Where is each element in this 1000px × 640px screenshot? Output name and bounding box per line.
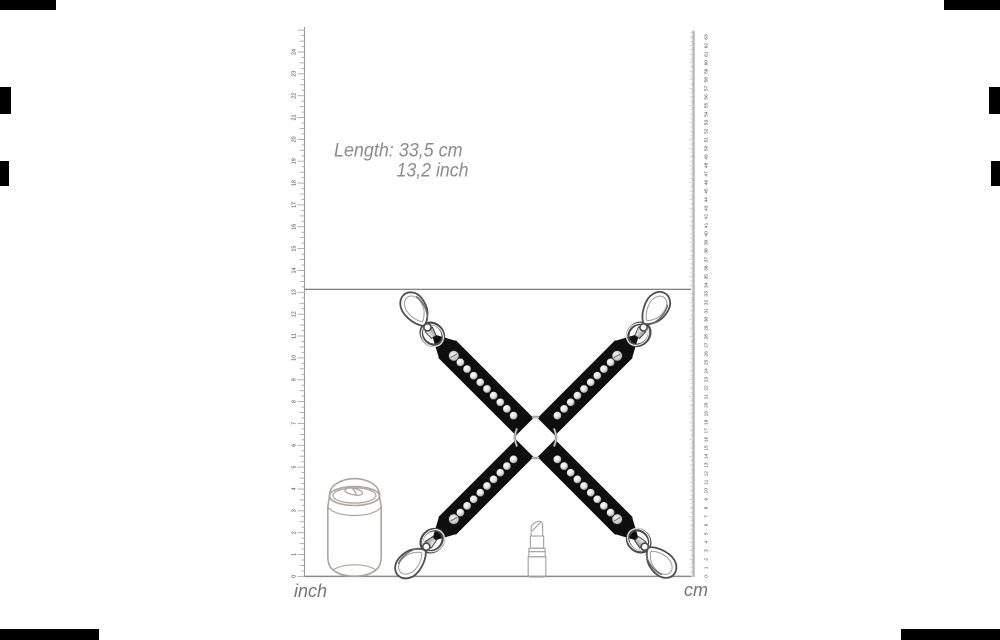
svg-text:inch: inch xyxy=(294,581,327,601)
svg-text:9: 9 xyxy=(704,498,710,501)
svg-text:39: 39 xyxy=(704,240,710,246)
svg-text:12: 12 xyxy=(704,471,710,477)
svg-text:4: 4 xyxy=(292,488,298,491)
svg-text:23: 23 xyxy=(704,377,710,383)
svg-text:52: 52 xyxy=(704,128,710,134)
svg-text:61: 61 xyxy=(704,51,710,57)
svg-text:10: 10 xyxy=(292,355,298,361)
svg-text:50: 50 xyxy=(704,145,710,151)
svg-text:19: 19 xyxy=(292,158,298,164)
svg-text:29: 29 xyxy=(704,325,710,331)
svg-text:14: 14 xyxy=(704,454,710,460)
svg-text:63: 63 xyxy=(704,34,710,40)
svg-text:62: 62 xyxy=(704,43,710,49)
svg-text:8: 8 xyxy=(292,400,298,403)
svg-text:8: 8 xyxy=(704,506,710,509)
svg-text:58: 58 xyxy=(704,77,710,83)
svg-text:14: 14 xyxy=(292,268,298,274)
svg-text:Length: 33,5 cm: Length: 33,5 cm xyxy=(334,140,463,162)
svg-text:1: 1 xyxy=(704,566,710,569)
svg-text:18: 18 xyxy=(292,180,298,186)
svg-text:24: 24 xyxy=(704,368,710,374)
svg-text:22: 22 xyxy=(292,93,298,99)
svg-text:44: 44 xyxy=(704,197,710,203)
svg-text:11: 11 xyxy=(704,479,710,484)
svg-text:22: 22 xyxy=(704,385,710,391)
svg-text:46: 46 xyxy=(704,180,710,186)
svg-text:6: 6 xyxy=(704,523,710,526)
svg-text:27: 27 xyxy=(704,342,710,348)
svg-text:15: 15 xyxy=(292,246,298,252)
svg-text:31: 31 xyxy=(704,308,710,314)
svg-text:21: 21 xyxy=(292,115,298,121)
svg-text:1: 1 xyxy=(292,553,298,556)
svg-text:13: 13 xyxy=(704,462,710,468)
svg-text:13: 13 xyxy=(292,289,298,295)
svg-text:17: 17 xyxy=(292,202,298,208)
svg-text:51: 51 xyxy=(704,137,710,143)
svg-text:34: 34 xyxy=(704,282,710,288)
svg-text:3: 3 xyxy=(292,509,298,512)
svg-text:21: 21 xyxy=(704,394,710,400)
svg-text:18: 18 xyxy=(704,419,710,425)
svg-text:41: 41 xyxy=(704,222,710,228)
svg-text:37: 37 xyxy=(704,257,710,263)
svg-text:2: 2 xyxy=(704,558,710,561)
svg-text:47: 47 xyxy=(704,171,710,177)
svg-text:26: 26 xyxy=(704,351,710,357)
svg-text:33: 33 xyxy=(704,291,710,297)
svg-text:5: 5 xyxy=(292,466,298,469)
svg-text:16: 16 xyxy=(704,436,710,442)
svg-text:28: 28 xyxy=(704,334,710,340)
svg-text:12: 12 xyxy=(292,311,298,317)
svg-text:7: 7 xyxy=(292,422,298,425)
svg-text:20: 20 xyxy=(292,136,298,142)
svg-text:53: 53 xyxy=(704,120,710,126)
svg-text:19: 19 xyxy=(704,411,710,417)
svg-text:4: 4 xyxy=(704,541,710,544)
svg-text:17: 17 xyxy=(704,428,710,434)
svg-text:20: 20 xyxy=(704,402,710,408)
svg-text:9: 9 xyxy=(292,378,298,381)
svg-text:15: 15 xyxy=(704,445,710,451)
svg-text:30: 30 xyxy=(704,317,710,323)
svg-text:0: 0 xyxy=(704,575,710,578)
svg-text:10: 10 xyxy=(704,488,710,494)
svg-text:40: 40 xyxy=(704,231,710,237)
svg-text:54: 54 xyxy=(704,111,710,117)
svg-text:2: 2 xyxy=(292,531,298,534)
svg-text:49: 49 xyxy=(704,154,710,160)
svg-text:45: 45 xyxy=(704,188,710,194)
svg-text:55: 55 xyxy=(704,103,710,109)
svg-text:13,2 inch: 13,2 inch xyxy=(397,160,469,182)
svg-text:6: 6 xyxy=(292,444,298,447)
svg-text:16: 16 xyxy=(292,224,298,230)
svg-text:42: 42 xyxy=(704,214,710,220)
svg-text:3: 3 xyxy=(704,549,710,552)
svg-text:56: 56 xyxy=(704,94,710,100)
svg-text:60: 60 xyxy=(704,60,710,66)
svg-text:7: 7 xyxy=(704,515,710,518)
svg-text:35: 35 xyxy=(704,274,710,280)
svg-text:57: 57 xyxy=(704,85,710,91)
svg-text:38: 38 xyxy=(704,248,710,254)
svg-text:cm: cm xyxy=(684,580,708,600)
svg-text:48: 48 xyxy=(704,162,710,168)
svg-text:36: 36 xyxy=(704,265,710,271)
svg-text:43: 43 xyxy=(704,205,710,211)
svg-text:11: 11 xyxy=(292,333,298,339)
svg-text:59: 59 xyxy=(704,68,710,74)
svg-text:25: 25 xyxy=(704,359,710,365)
svg-text:5: 5 xyxy=(704,532,710,535)
svg-text:24: 24 xyxy=(292,49,298,55)
svg-text:32: 32 xyxy=(704,299,710,305)
svg-text:0: 0 xyxy=(292,575,298,578)
svg-text:23: 23 xyxy=(292,71,298,77)
